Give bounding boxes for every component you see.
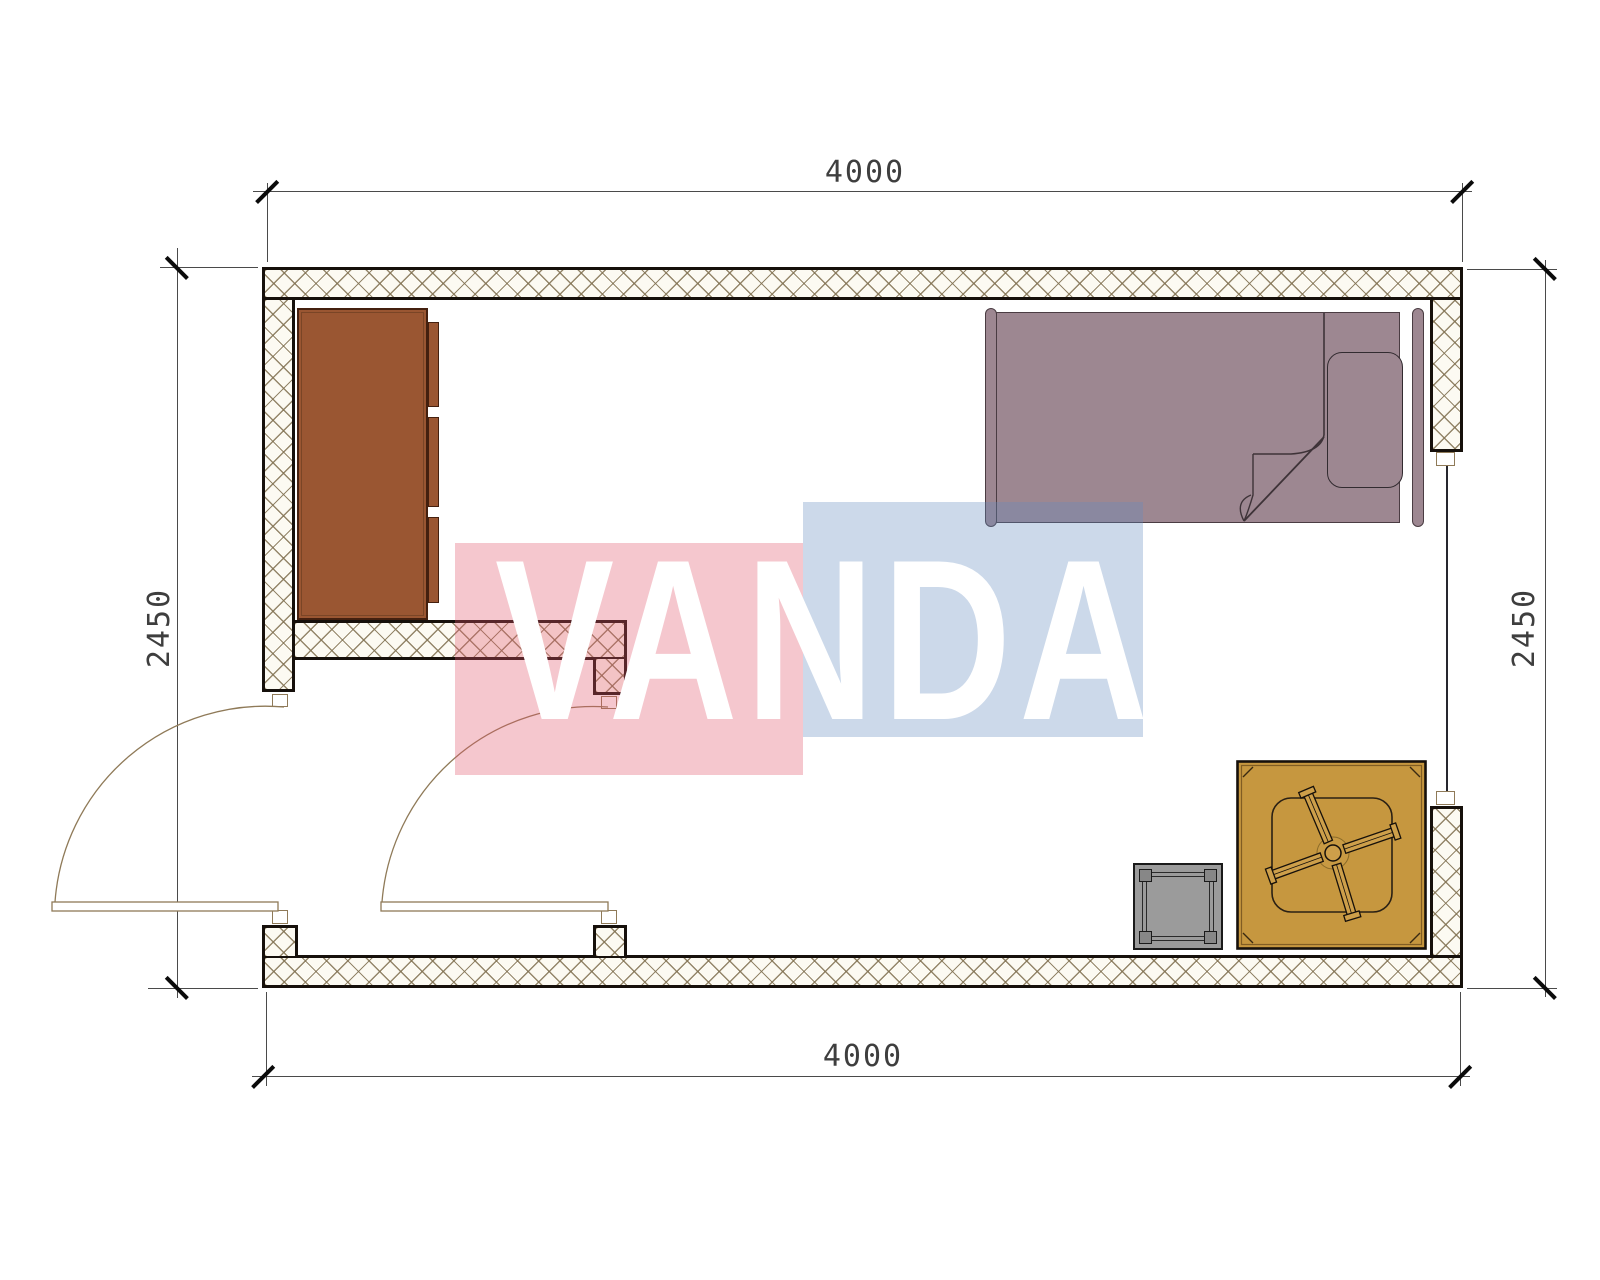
table bbox=[1236, 760, 1427, 950]
dim-text-left: 2450 bbox=[144, 553, 176, 703]
wardrobe-door-panel bbox=[428, 322, 439, 407]
dim-text-bottom: 4000 bbox=[788, 1041, 938, 1073]
extension-line-top-left bbox=[267, 183, 268, 262]
wall-right-lower bbox=[1430, 806, 1463, 958]
wall-left bbox=[262, 297, 295, 692]
floor-plan-canvas: 4000 4000 2450 2450 bbox=[0, 0, 1600, 1280]
stool-leg bbox=[1139, 931, 1152, 944]
entry-door-leaf bbox=[52, 902, 278, 911]
wardrobe-inner-line bbox=[301, 312, 424, 616]
stool bbox=[1133, 863, 1223, 950]
bed bbox=[985, 308, 1424, 527]
extension-line-left-bottom bbox=[148, 988, 258, 989]
door-jamb bbox=[272, 694, 288, 707]
window-line bbox=[1446, 466, 1448, 791]
watermark-text: VANDA bbox=[495, 540, 1119, 740]
bed-footboard bbox=[1412, 308, 1424, 527]
entry-door-arc bbox=[55, 706, 284, 902]
wall-top bbox=[262, 267, 1463, 300]
stool-leg bbox=[1204, 931, 1217, 944]
wall-stub-bottom-left bbox=[262, 925, 298, 956]
stool-leg bbox=[1204, 869, 1217, 882]
dim-text-top: 4000 bbox=[790, 157, 940, 189]
wardrobe bbox=[297, 308, 428, 620]
right-dimension-line bbox=[1545, 260, 1546, 997]
wardrobe-door-panel bbox=[428, 417, 439, 507]
left-dimension-line bbox=[177, 248, 178, 998]
interior-door-leaf bbox=[381, 902, 608, 911]
dim-text-right: 2450 bbox=[1509, 553, 1541, 703]
bottom-dimension-line bbox=[252, 1076, 1470, 1077]
wall-bottom bbox=[262, 955, 1463, 988]
door-jamb bbox=[601, 910, 617, 924]
window-jamb bbox=[1436, 791, 1455, 805]
wall-stub-bottom-mid bbox=[593, 925, 627, 956]
door-jamb bbox=[272, 910, 288, 924]
extension-line-top-right bbox=[1462, 183, 1463, 262]
stool-leg bbox=[1139, 869, 1152, 882]
table-and-fan-drawing bbox=[1236, 760, 1427, 950]
top-dimension-line bbox=[253, 191, 1472, 192]
stool-frame-inner bbox=[1146, 876, 1210, 937]
window-jamb bbox=[1436, 452, 1455, 466]
pillow bbox=[1327, 352, 1403, 488]
wall-right-upper bbox=[1430, 297, 1463, 452]
wardrobe-door-panel bbox=[428, 517, 439, 603]
